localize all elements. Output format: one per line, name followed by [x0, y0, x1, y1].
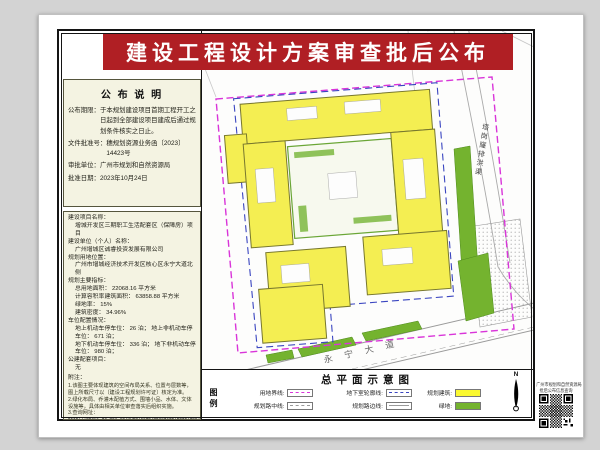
notice-label: 批准日期： — [68, 174, 100, 184]
indicators-label: 规划主要指标： — [68, 278, 196, 286]
project-owner-label: 建设单位（个人）名称： — [68, 239, 196, 247]
indicator-density: 建筑密度： 34.96% — [68, 310, 196, 318]
drawing-frame: 建设工程设计方案审查批后公布 公 布 说 明 公布期限： 于本规划建设项目首期工… — [57, 29, 535, 421]
road-edgeline-swatch — [386, 402, 412, 410]
building-swatch — [455, 389, 481, 397]
notice-text: 广州市规划和自然资源局 — [100, 161, 196, 171]
road-centerline-swatch — [287, 402, 313, 410]
notice-item: 批准日期： 2023年10月24日 — [68, 174, 196, 184]
buildings-group — [222, 83, 457, 349]
parking-below: 地下机动车停车位： 336 泊； 地下非机动车停车位： 980 泊； — [68, 342, 196, 358]
project-info-panel: 建设项目名称： 增城开发区三期职工生活配套区（保障房）项目 建设单位（个人）名称… — [63, 211, 201, 420]
legend-title: 图例 — [208, 388, 219, 410]
site-plan-column: 永宁大道 塔岗窿排洪渠 总平面示意图 图例 用地界线: 地下室轮廓线: — [201, 31, 533, 419]
legend-item-boundary: 用地界线: — [223, 388, 321, 397]
note-2: 2.绿化布局、乔灌木配植方式、围墙小品、水体、文体设施等，具体由相关单位审查落实… — [68, 397, 196, 411]
qr-caption-2: 批后公布信息查询 — [536, 388, 576, 393]
project-name-label: 建设项目名称： — [68, 215, 196, 223]
legend-item-road-edge: 规划路边线: — [321, 401, 419, 410]
project-location: 广州市增城经济技术开发区核心区永宁大道北侧 — [68, 262, 196, 278]
legend-item-green: 绿地: — [420, 401, 489, 410]
road-label: 永宁大道 — [322, 335, 406, 365]
parking-label: 车位配置情况： — [68, 318, 196, 326]
legend-item-basement: 地下室轮廓线: — [321, 388, 419, 397]
green-swatch — [455, 402, 481, 410]
project-owner: 广州增城区诚睿投资发展有限公司 — [68, 247, 196, 255]
notice-panel-title: 公 布 说 明 — [68, 86, 196, 101]
basement-line-swatch — [386, 389, 412, 397]
indicator-floor-area: 计算容积率建筑面积： 63858.88 平方米 — [68, 294, 196, 302]
public-facility-label: 公建配套项目： — [68, 357, 196, 365]
qr-block: 广州市规划和自然资源局 批后公布信息查询 — [534, 382, 578, 433]
boundary-line-swatch — [287, 389, 313, 397]
left-column: 公 布 说 明 公布期限： 于本规划建设项目首期工程开工之日起到全部建设项目建成… — [63, 79, 201, 416]
notice-label: 公布期限： — [68, 106, 100, 137]
legend-item-road-center: 规划路中线: — [223, 401, 321, 410]
query-url: http://ghzyj.gz.gov.cn/ywpd/csgh/ghxkgsg… — [68, 417, 178, 420]
page-title: 建设工程设计方案审查批后公布 — [126, 37, 490, 67]
legend: 图例 用地界线: 地下室轮廓线: 规划建筑: — [208, 388, 489, 410]
north-label: N — [509, 371, 523, 378]
notice-label: 文件批准号： — [68, 139, 106, 160]
compass-needle-icon — [509, 378, 523, 412]
notice-item: 公布期限： 于本规划建设项目首期工程开工之日起到全部建设项目建成后通过规划条件核… — [68, 106, 196, 137]
indicator-land-area: 总用地面积： 22068.16 平方米 — [68, 286, 196, 294]
notice-item: 审批单位： 广州市规划和自然资源局 — [68, 161, 196, 171]
north-compass: N — [509, 371, 523, 417]
indicator-green-ratio: 绿地率： 15% — [68, 302, 196, 310]
qr-code-icon — [539, 394, 573, 428]
notice-text: 于本规划建设项目首期工程开工之日起到全部建设项目建成后通过规划条件核实之日止。 — [100, 106, 196, 137]
plan-footer: 总平面示意图 图例 用地界线: 地下室轮廓线: 规划建筑: — [202, 369, 533, 419]
project-name: 增城开发区三期职工生活配套区（保障房）项目 — [68, 223, 196, 239]
site-plan-drawing: 永宁大道 — [202, 31, 533, 369]
notice-label: 审批单位： — [68, 161, 100, 171]
note-3: 3.查询网址： — [68, 410, 196, 417]
legend-item-building: 规划建筑: — [420, 388, 489, 397]
notice-text: 2023年10月24日 — [100, 174, 196, 184]
notice-text: 穗规划资源业务函〔2023〕14423号 — [106, 139, 196, 160]
notice-panel: 公 布 说 明 公布期限： 于本规划建设项目首期工程开工之日起到全部建设项目建成… — [63, 79, 201, 207]
public-facility-value: 无 — [68, 365, 196, 373]
plan-title: 总平面示意图 — [202, 372, 533, 387]
document-paper: 建设工程设计方案审查批后公布 公 布 说 明 公布期限： 于本规划建设项目首期工… — [38, 14, 584, 438]
notes-label: 附注： — [68, 375, 196, 383]
parking-above: 地上机动车停车位： 26 泊； 地上非机动车停车位： 671 泊； — [68, 326, 196, 342]
site-plan-canvas: 永宁大道 塔岗窿排洪渠 — [202, 31, 533, 369]
title-banner: 建设工程设计方案审查批后公布 — [103, 34, 513, 70]
notice-item: 文件批准号： 穗规划资源业务函〔2023〕14423号 — [68, 139, 196, 160]
note-1: 1.该图主要体现建筑的空间布局关系、位置与层数等，图上所载尺寸以〔建设工程规划许… — [68, 383, 196, 397]
